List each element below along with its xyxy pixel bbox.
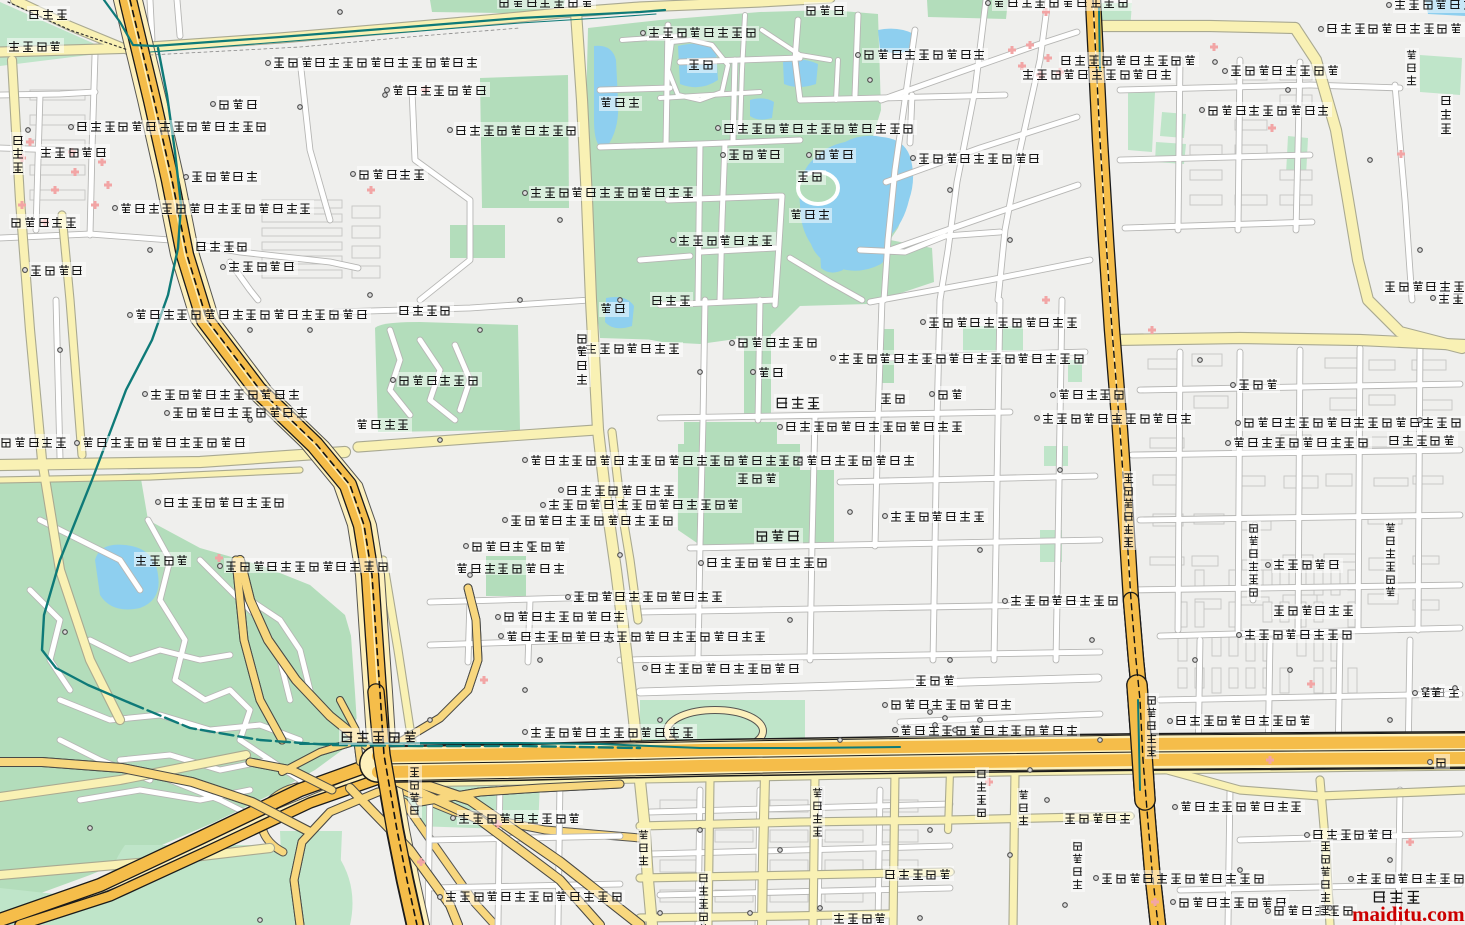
svg-text:maiditu.com: maiditu.com — [1352, 902, 1465, 925]
